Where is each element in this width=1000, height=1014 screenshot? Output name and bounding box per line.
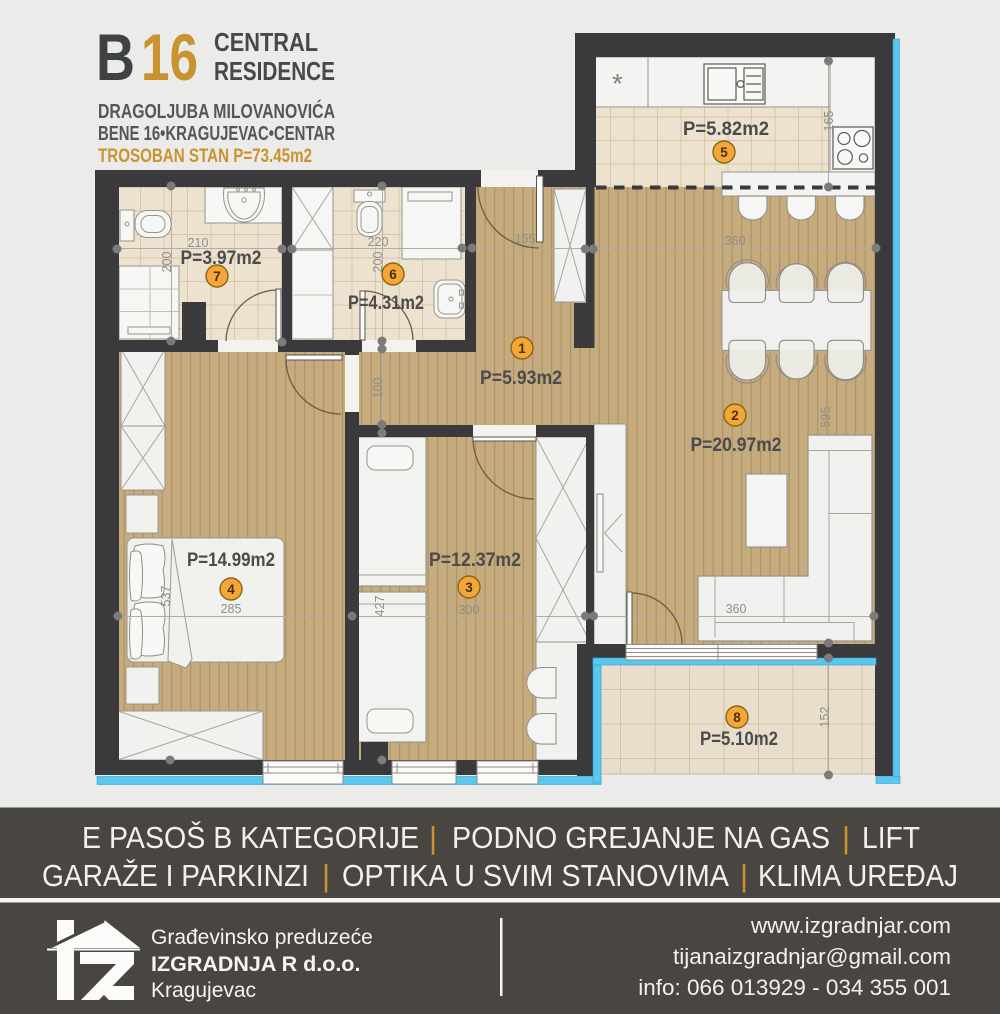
svg-text:4: 4 [227, 582, 235, 597]
svg-text:*: * [612, 68, 623, 99]
svg-text:P=5.82m2: P=5.82m2 [683, 119, 769, 140]
svg-text:P=5.10m2: P=5.10m2 [700, 729, 778, 750]
svg-text:KLIMA UREĐAJ: KLIMA UREĐAJ [758, 858, 958, 893]
svg-text:100: 100 [371, 378, 385, 399]
svg-text:300: 300 [459, 603, 480, 617]
svg-text:285: 285 [221, 602, 242, 616]
svg-text:P=5.93m2: P=5.93m2 [480, 368, 562, 389]
svg-text:RESIDENCE: RESIDENCE [214, 56, 335, 86]
svg-text:220: 220 [368, 235, 389, 249]
svg-text:PODNO GREJANJE NA GAS: PODNO GREJANJE NA GAS [452, 820, 830, 855]
svg-text:360: 360 [725, 234, 746, 248]
svg-text:www.izgradnjar.com: www.izgradnjar.com [750, 913, 951, 938]
svg-text:360: 360 [726, 602, 747, 616]
svg-text:LIFT: LIFT [862, 820, 920, 855]
svg-text:537: 537 [159, 586, 173, 607]
svg-text:|: | [322, 858, 330, 893]
svg-text:B: B [96, 20, 135, 94]
svg-text:210: 210 [188, 236, 209, 250]
svg-text:595: 595 [819, 407, 833, 428]
svg-text:E PASOŠ B KATEGORIJE: E PASOŠ B KATEGORIJE [82, 820, 419, 855]
svg-text:P=4.31m2: P=4.31m2 [348, 293, 424, 314]
svg-text:IZGRADNJA R d.o.o.: IZGRADNJA R d.o.o. [151, 952, 360, 976]
svg-text:16: 16 [141, 20, 198, 94]
svg-text:Građevinsko preduzeće: Građevinsko preduzeće [151, 926, 373, 949]
svg-text:|: | [740, 858, 748, 893]
svg-text:CENTRAL: CENTRAL [214, 27, 318, 57]
svg-text:P=14.99m2: P=14.99m2 [187, 550, 275, 571]
svg-text:OPTIKA U SVIM STANOVIMA: OPTIKA U SVIM STANOVIMA [342, 858, 729, 893]
svg-text:|: | [429, 820, 437, 855]
svg-text:6: 6 [389, 267, 397, 282]
svg-text:|: | [842, 820, 850, 855]
svg-text:GARAŽE I PARKINZI: GARAŽE I PARKINZI [42, 858, 309, 893]
svg-text:2: 2 [731, 408, 739, 423]
svg-text:1: 1 [518, 341, 526, 356]
svg-text:DRAGOLJUBA MILOVANOVIĆA: DRAGOLJUBA MILOVANOVIĆA [98, 99, 335, 123]
svg-text:152: 152 [818, 707, 832, 728]
svg-text:3: 3 [465, 580, 473, 595]
svg-text:TROSOBAN STAN P=73.45m2: TROSOBAN STAN P=73.45m2 [98, 146, 312, 167]
svg-text:200: 200 [160, 252, 174, 273]
svg-text:7: 7 [213, 269, 221, 284]
svg-text:8: 8 [733, 710, 741, 725]
svg-text:5: 5 [720, 145, 728, 160]
svg-text:165: 165 [822, 111, 836, 132]
svg-text:info: 066 013929 - 034 355 001: info: 066 013929 - 034 355 001 [638, 975, 951, 1000]
svg-text:155: 155 [515, 232, 536, 246]
svg-text:Kragujevac: Kragujevac [151, 979, 256, 1002]
svg-text:tijanaizgradnjar@gmail.com: tijanaizgradnjar@gmail.com [673, 944, 951, 969]
svg-text:P=12.37m2: P=12.37m2 [429, 550, 521, 571]
svg-text:427: 427 [373, 596, 387, 617]
svg-text:P=20.97m2: P=20.97m2 [691, 435, 782, 456]
svg-text:BENE 16•KRAGUJEVAC•CENTAR: BENE 16•KRAGUJEVAC•CENTAR [98, 123, 335, 145]
